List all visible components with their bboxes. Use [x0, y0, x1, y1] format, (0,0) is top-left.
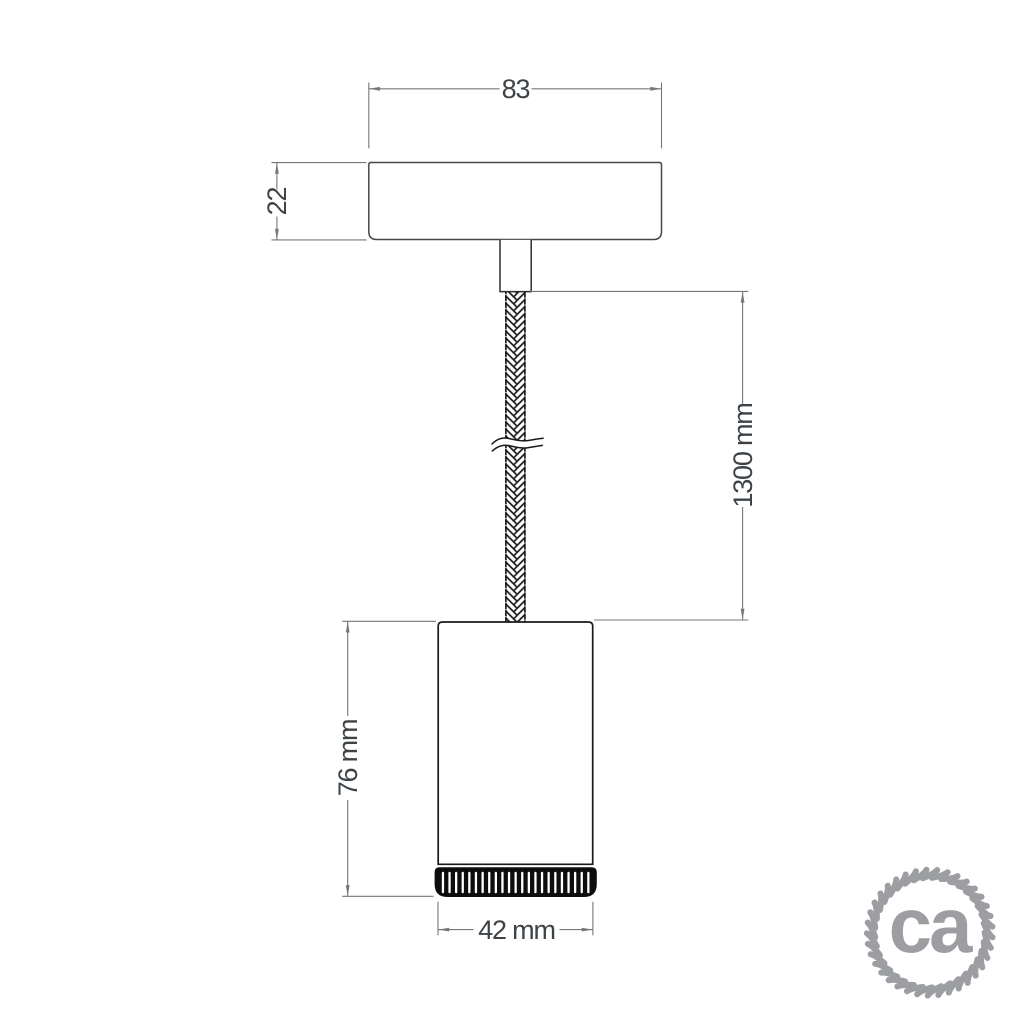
svg-text:83: 83 [502, 74, 530, 104]
svg-text:76 mm: 76 mm [333, 720, 363, 797]
svg-text:42 mm: 42 mm [478, 915, 555, 945]
svg-text:22: 22 [262, 188, 292, 216]
svg-text:ca: ca [889, 881, 973, 969]
svg-text:1300 mm: 1300 mm [728, 403, 758, 507]
